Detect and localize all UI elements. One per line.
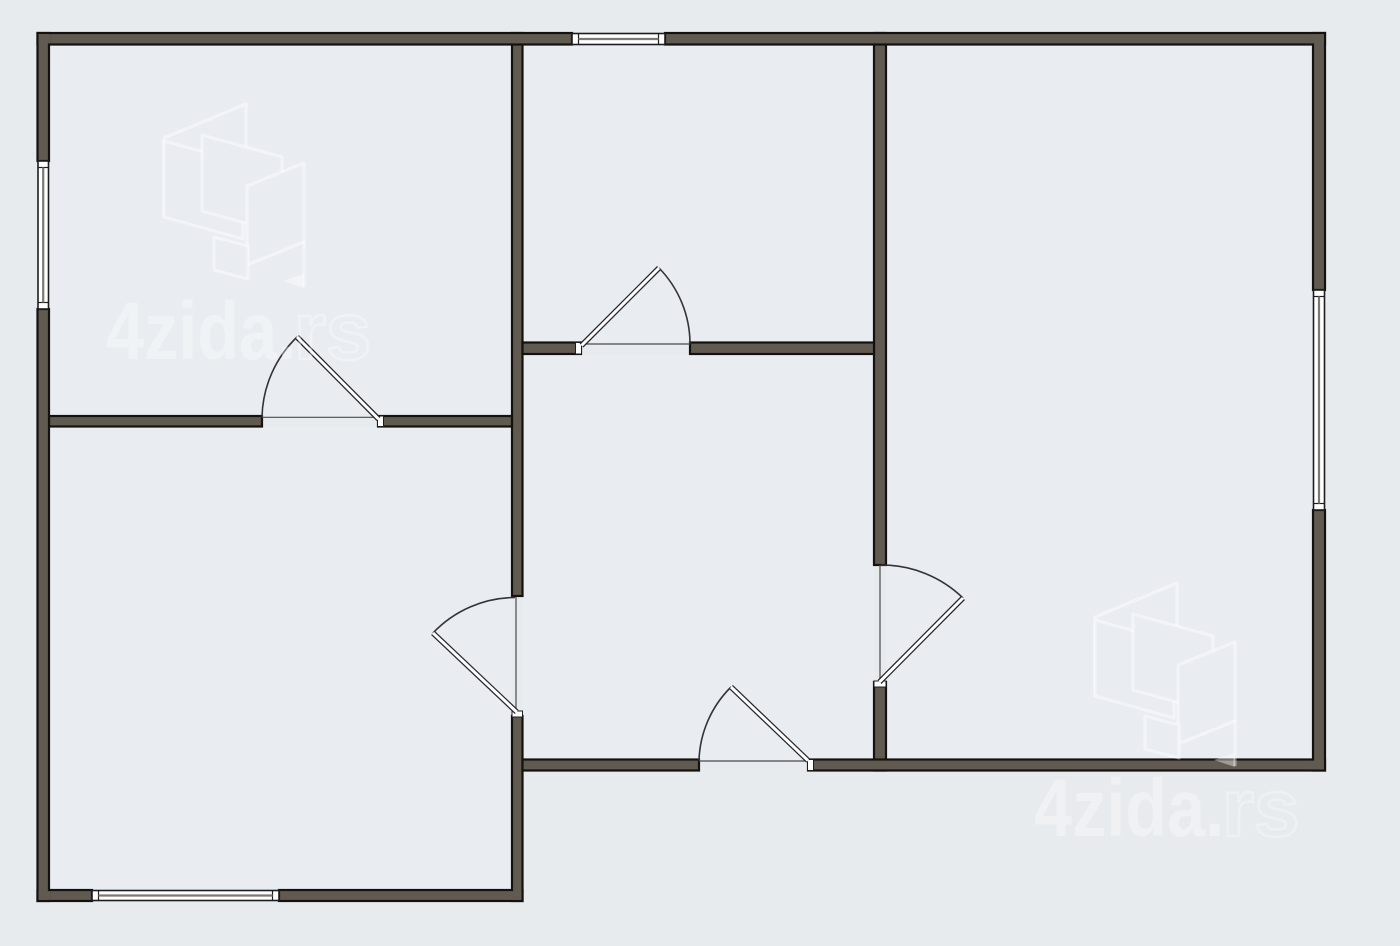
svg-text:rs: rs <box>1222 763 1300 854</box>
svg-text:4zida.: 4zida. <box>106 286 296 377</box>
svg-text:4zida.: 4zida. <box>1034 763 1224 854</box>
svg-text:rs: rs <box>294 286 372 377</box>
